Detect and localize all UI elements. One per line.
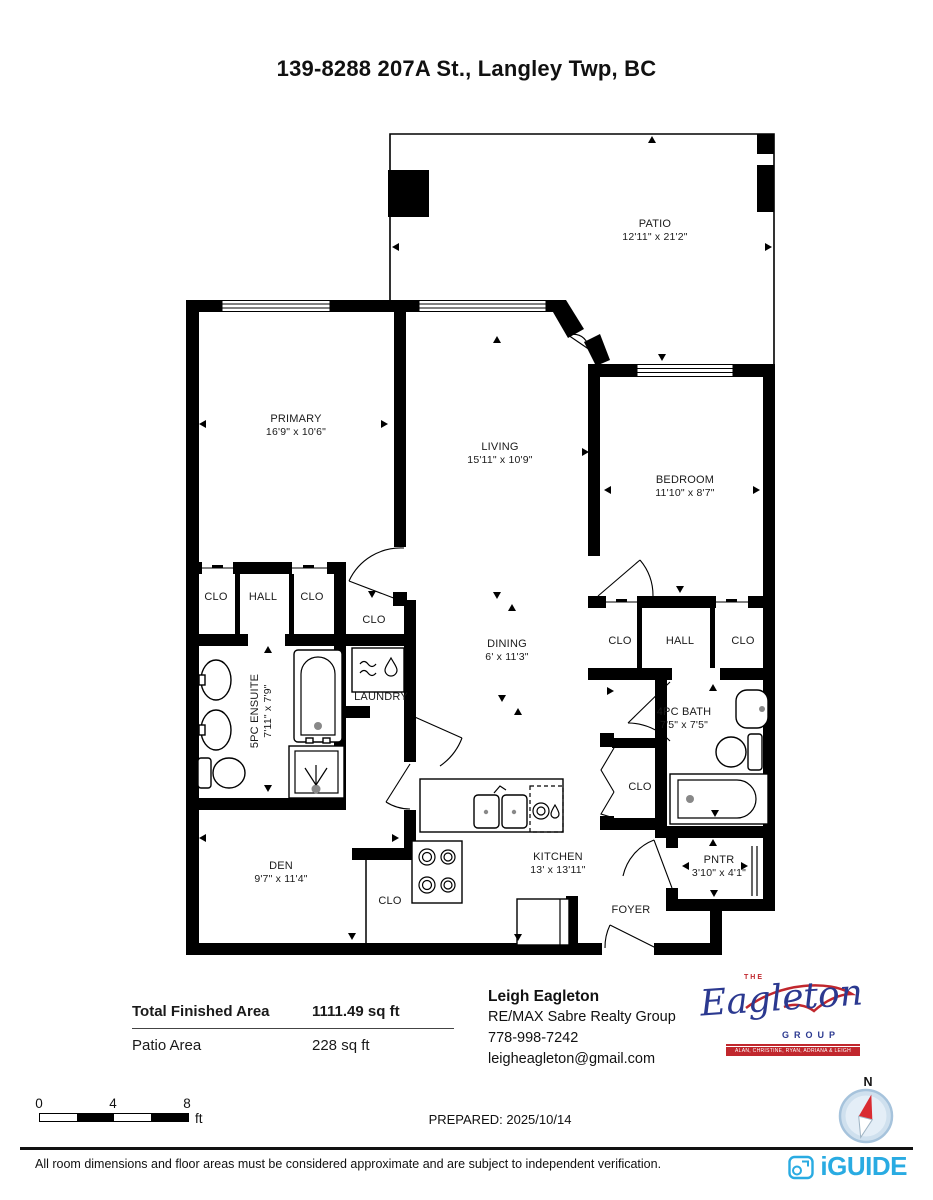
room-label-closet: CLO	[608, 634, 631, 648]
room-label-pantry: PNTR3'10" x 4'1"	[692, 853, 746, 881]
patio-area-value: 228 sq ft	[312, 1037, 370, 1054]
room-label-foyer: FOYER	[612, 903, 651, 917]
patio-area-row: Patio Area 228 sq ft	[132, 1029, 454, 1062]
area-summary-table: Total Finished Area 1111.49 sq ft Patio …	[132, 995, 454, 1062]
agent-info: Leigh Eagleton RE/MAX Sabre Realty Group…	[488, 986, 676, 1070]
room-label-kitchen: KITCHEN13' x 13'11"	[530, 850, 585, 878]
scale-tick-4: 4	[109, 1096, 117, 1111]
agent-email: leigheagleton@gmail.com	[488, 1049, 676, 1070]
iguide-icon	[787, 1153, 815, 1181]
total-area-row: Total Finished Area 1111.49 sq ft	[132, 995, 454, 1029]
iguide-wordmark: iGUIDE	[820, 1151, 907, 1182]
scale-unit: ft	[195, 1111, 203, 1126]
logo-members: ALAN, CHRISTINE, RYAN, ADRIANA & LEIGH	[726, 1047, 860, 1056]
logo-divider	[726, 1044, 860, 1046]
floorplan-page: 139-8288 207A St., Langley Twp, BC	[0, 0, 933, 1200]
agent-phone: 778-998-7242	[488, 1028, 676, 1049]
room-label-hall-right: HALL	[666, 634, 694, 648]
exterior-walls	[186, 300, 775, 955]
room-label-closet: CLO	[204, 590, 227, 604]
footer-divider	[20, 1147, 913, 1150]
room-label-living: LIVING15'11" x 10'9"	[467, 440, 532, 468]
room-label-bedroom: BEDROOM11'10" x 8'7"	[655, 473, 714, 501]
scale-bar: 0 4 8 ft	[35, 1096, 225, 1128]
room-label-primary: PRIMARY16'9" x 10'6"	[266, 412, 326, 440]
patio-area-label: Patio Area	[132, 1037, 312, 1054]
room-label-patio: PATIO12'11" x 21'2"	[622, 217, 687, 245]
room-label-dining: DINING6' x 11'3"	[485, 637, 528, 665]
room-label-closet: CLO	[378, 894, 401, 908]
scale-bar-graphic	[39, 1113, 189, 1122]
prepared-date: PREPARED: 2025/10/14	[380, 1112, 620, 1127]
logo-group: GROUP	[782, 1030, 840, 1040]
room-label-hall-left: HALL	[249, 590, 277, 604]
total-area-value: 1111.49 sq ft	[312, 1003, 400, 1020]
room-label-ensuite: 5PC ENSUITE7'11" x 7'9"	[248, 674, 276, 748]
footer-disclaimer: All room dimensions and floor areas must…	[35, 1157, 661, 1171]
interior-walls	[186, 300, 775, 955]
patio-outline	[388, 134, 774, 366]
room-label-closet: CLO	[300, 590, 323, 604]
windows	[222, 301, 733, 377]
room-label-laundry: LAUNDRY	[354, 690, 408, 704]
iguide-logo: iGUIDE	[787, 1151, 907, 1182]
laundry-fixtures	[352, 648, 404, 692]
compass-north-label: N	[863, 1075, 872, 1089]
room-label-bath: 4PC BATH7'5" x 7'5"	[657, 705, 712, 733]
room-label-closet: CLO	[731, 634, 754, 648]
compass: N	[833, 1072, 899, 1148]
room-label-closet: CLO	[628, 780, 651, 794]
eagleton-group-logo: THE Eagleton GROUP ALAN, CHRISTINE, RYAN…	[698, 974, 868, 1066]
agent-name: Leigh Eagleton	[488, 986, 676, 1007]
room-label-den: DEN9'7" x 11'4"	[254, 859, 307, 887]
agent-company: RE/MAX Sabre Realty Group	[488, 1007, 676, 1028]
total-area-label: Total Finished Area	[132, 1003, 312, 1020]
scale-tick-0: 0	[35, 1096, 43, 1111]
scale-tick-8: 8	[183, 1096, 191, 1111]
room-label-closet: CLO	[362, 613, 385, 627]
